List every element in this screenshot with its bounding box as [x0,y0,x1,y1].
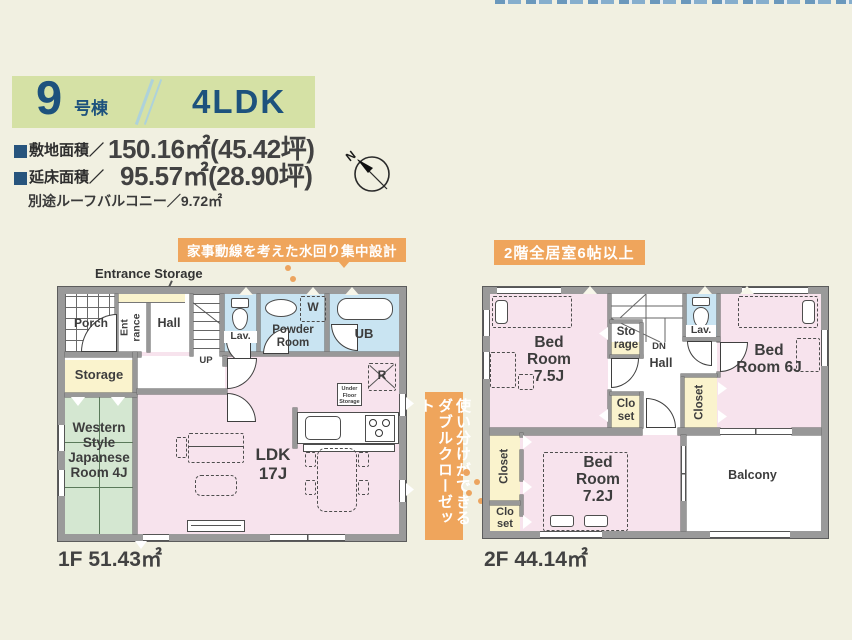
room-label-lav-1f: Lav. [224,331,257,343]
divider-slash [144,79,162,125]
callout-second-floor: 2階全居室6帖以上 [494,240,645,265]
burner-icon [382,419,390,427]
site-area-bullet-icon [14,145,27,158]
wall [65,393,137,397]
unit-number: 9 [36,72,62,124]
site-area-label: 敷地面積／ [29,143,104,160]
vent-icon [583,286,597,294]
room-label-storage-1f: Storage [67,368,131,382]
room-label-closet-mid: Clo set [610,398,642,423]
dot-accent [285,265,291,271]
window [399,480,406,502]
vent-icon [698,286,712,294]
bathtub-icon [337,298,393,320]
room-label-bedroom-72: Bed Room 7.2J [562,454,634,505]
window [497,287,561,294]
window [720,428,792,435]
callout-double-closet: 使い分けができるダブルクローゼット [425,392,463,540]
compass-n-label: N [344,148,358,164]
callout-second-floor-text: 2階全居室6帖以上 [504,242,635,263]
room-entrance-storage [115,294,185,303]
vent-icon [406,483,414,496]
callout-water-design: 家事動線を考えた水回り集中設計 [178,238,406,262]
window [540,531,602,538]
wall [520,450,523,481]
floor-plan-flyer: 9 号棟 4LDK 敷地面積／ 150.16㎡(45.42坪) 延床面積／ 95… [0,0,852,640]
sofa [188,433,244,463]
dining-table [317,448,357,512]
chair [305,480,316,495]
chair [358,452,369,467]
washer-label: W [300,301,326,314]
callout-pointer [338,261,350,268]
room-label-closet-bl-small: Clo set [490,506,520,530]
floor-area-label: 延床面積／ [29,170,104,187]
vent-icon [239,287,253,295]
room-label-bedroom-6: Bed Room 6J [733,342,805,376]
stove-icon [365,415,395,442]
window [58,470,65,496]
dot-accent [474,479,480,485]
toilet-icon [692,297,710,306]
room-label-closet-center: Closet [694,377,707,427]
floor2-plan: Bed Room 7.5J Sto rage DN Hall Lav. Bed … [483,287,828,538]
toilet-icon [231,298,249,308]
top-edge-artifact [495,0,852,4]
pillow-icon [584,515,608,527]
callout-double-closet-text: 使い分けができるダブルクローゼット [417,398,471,534]
tv-board-line [191,525,241,526]
sink-icon [265,299,297,317]
room-label-japanese: Western Style Japanese Room 4J [66,421,132,480]
wall [681,377,684,428]
wall [717,372,720,377]
room-label-powder: Powder Room [264,324,322,349]
wall [65,352,141,357]
window [399,394,406,416]
pillow-icon [802,300,815,324]
room-label-storage-2f: Sto rage [610,326,642,351]
dot-accent [463,469,470,476]
compass-icon: N [344,146,394,198]
pillow-icon [495,300,508,324]
vent-icon [306,287,320,295]
window [483,352,490,379]
unit-number-suffix: 号棟 [74,100,108,119]
wall [520,433,523,437]
room-label-closet-bl: Closet [499,441,512,491]
unit-header-band: 9 号棟 4LDK [12,76,315,128]
wall [678,428,720,435]
floor-area-bullet-icon [14,172,27,185]
entrance-storage-label: Entrance Storage [95,267,203,281]
wall [792,428,821,435]
door-arc [687,341,712,366]
window [143,534,169,541]
wall [520,495,523,516]
stairs-up-label: UP [193,356,219,366]
floor1-plan: Porch Ent rance Hall UP Lav. Powder Room… [58,287,406,541]
room-label-porch: Porch [67,317,115,330]
stairs-down-label: DN [648,342,670,352]
under-floor-storage-label: Under Floor Storage [337,386,362,406]
sofa-line [189,446,243,447]
window [710,531,790,538]
roof-balcony-note: 別途ルーフバルコニー／9.72㎡ [28,194,222,209]
burner-icon [375,429,383,437]
wall [220,294,224,352]
side-table [176,437,187,458]
room-label-hall-2f: Hall [640,357,682,371]
dot-accent [290,276,296,282]
chair [358,480,369,495]
fridge-label: R [368,369,396,382]
window [821,330,828,366]
wall [610,320,642,323]
wall [190,294,193,356]
door-arc [646,398,676,428]
wall [257,294,260,352]
wall [490,428,642,435]
floor1-area-label: 1F 51.43㎡ [58,548,162,571]
coffee-table [195,475,237,496]
dot-accent [466,490,472,496]
door-arc [611,358,639,388]
room-label-bedroom-75: Bed Room 7.5J [514,334,584,385]
room-label-balcony: Balcony [715,469,790,483]
floor-area-value: 95.57㎡(28.90坪) [120,162,312,191]
room-label-lav-2f: Lav. [686,325,716,337]
plan-type: 4LDK [192,84,286,120]
window [483,310,490,336]
burner-icon [369,419,377,427]
room-label-ldk: LDK 17J [247,446,299,483]
room-label-hall-1f: Hall [148,317,190,331]
wall [717,294,720,342]
window [58,425,65,451]
window [681,446,686,501]
chair [305,452,316,467]
room-label-entrance: Ent rance [119,311,142,345]
callout-water-design-text: 家事動線を考えた水回り集中設計 [187,240,397,260]
site-area-value: 150.16㎡(45.42坪) [108,135,314,164]
vent-icon [345,287,359,295]
vent-icon [406,397,414,410]
dresser [490,352,516,388]
wall [133,352,137,534]
pillow-icon [550,515,574,527]
kitchen-sink-icon [305,416,341,440]
wall [610,392,643,395]
floor2-area-label: 2F 44.14㎡ [484,548,588,571]
stairs-1f [192,294,220,356]
wall [490,501,520,505]
room-label-bath: UB [349,327,379,341]
wall [137,389,227,394]
window [270,534,345,541]
